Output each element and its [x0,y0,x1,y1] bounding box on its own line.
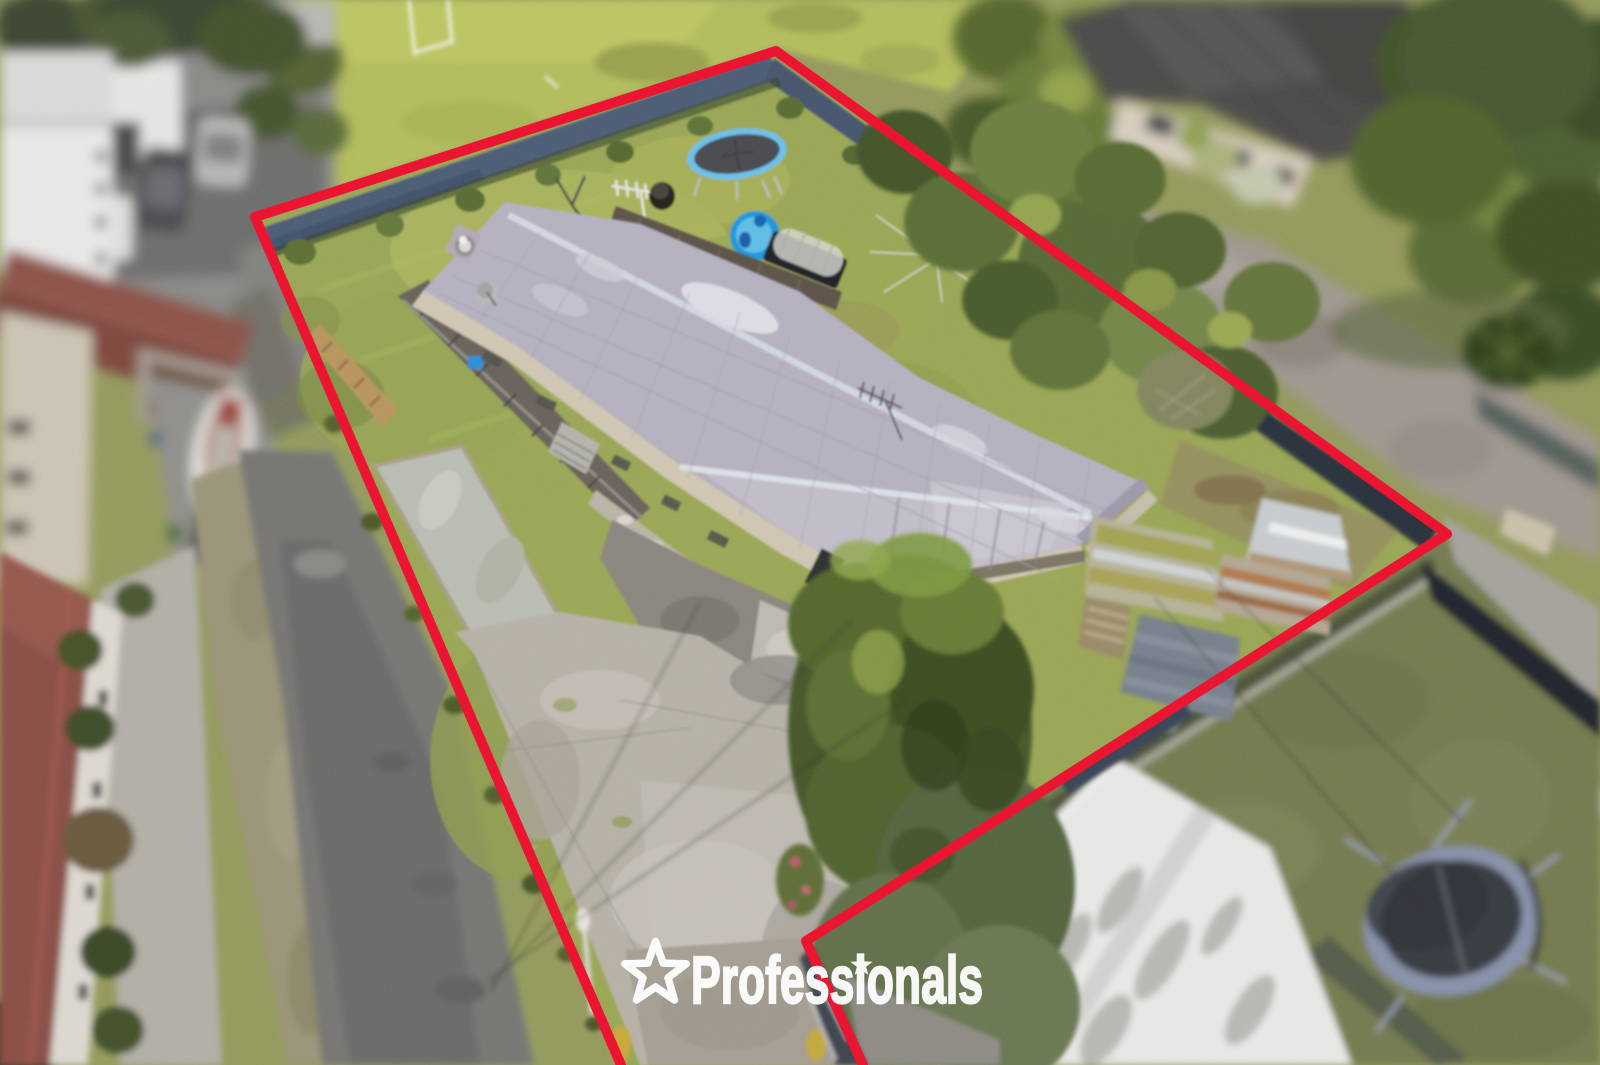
svg-text:Professionals: Professionals [691,943,983,1018]
